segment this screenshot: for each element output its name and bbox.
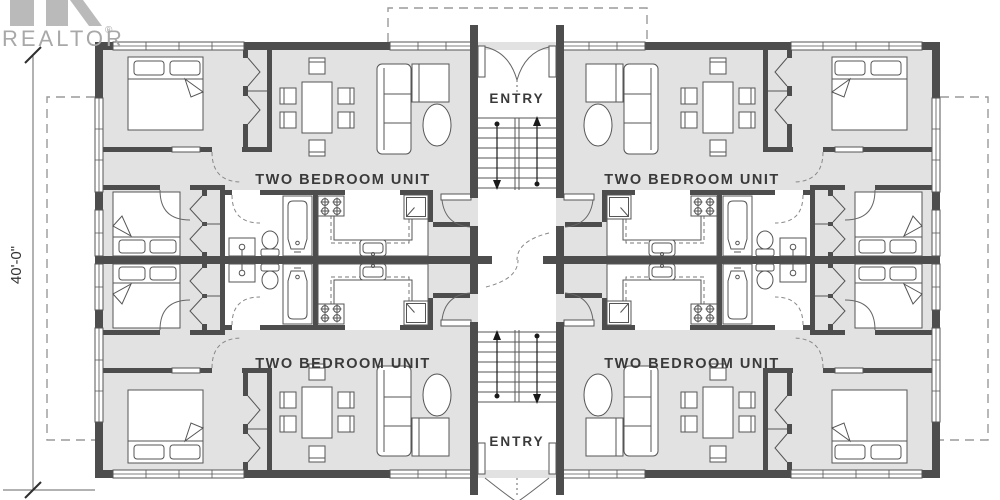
unit-label-top-left: TWO BEDROOM UNIT [255, 172, 430, 188]
window [390, 42, 473, 50]
pillow [170, 61, 200, 75]
dining-chair [338, 112, 350, 128]
dining-chair [284, 112, 296, 128]
window [113, 42, 244, 50]
sink-vanity [229, 238, 255, 256]
entry-label-top: ENTRY [489, 91, 544, 106]
unit-label-bottom-left: TWO BEDROOM UNIT [255, 356, 430, 372]
deck-outline-left [47, 97, 95, 440]
dining-chair [280, 112, 284, 128]
deck-outline-right [940, 97, 988, 440]
double-bed [113, 192, 180, 256]
realtor-logo-mark [70, 0, 102, 26]
pillow [134, 61, 164, 75]
window [95, 210, 103, 256]
double-bed [128, 57, 203, 130]
toilet [261, 231, 279, 256]
dining-chair [309, 62, 325, 74]
dining-chair [350, 88, 354, 104]
pillow [150, 240, 176, 253]
dining-chair [280, 88, 284, 104]
unit-label-top-right: TWO BEDROOM UNIT [604, 172, 779, 188]
pillow [119, 240, 145, 253]
entry-door-leaf [549, 46, 556, 77]
dining-chair [338, 88, 350, 104]
entry-label-bottom: ENTRY [489, 434, 544, 449]
kitchen-sink [360, 240, 386, 256]
realtor-logo-mark [10, 0, 34, 26]
dining-chair [284, 88, 296, 104]
bathtub [283, 196, 312, 256]
realtor-logo: REALTOR ® [2, 0, 125, 51]
unit-label-bottom-right: TWO BEDROOM UNIT [604, 356, 779, 372]
floor-plan-svg: 40'-0" [0, 0, 1000, 500]
dining-chair [309, 152, 325, 156]
entry-double-doors-bottom [485, 478, 549, 500]
dining-chair [350, 112, 354, 128]
dimension-label: 40'-0" [8, 246, 25, 284]
dining-chair [309, 140, 325, 152]
porch-outline-top [388, 8, 647, 42]
dining-chair [309, 58, 325, 62]
realtor-logo-mark [46, 0, 68, 26]
refrigerator [404, 195, 428, 219]
registered-mark: ® [105, 25, 113, 36]
chaise-section [412, 64, 449, 102]
entry-door-leaf [478, 46, 485, 77]
coffee-table [423, 104, 451, 146]
stove [318, 196, 344, 216]
window [95, 98, 103, 192]
floor-plan-page: 40'-0" [0, 0, 1000, 500]
cased-opening [172, 147, 200, 152]
door-leaf [441, 194, 471, 200]
